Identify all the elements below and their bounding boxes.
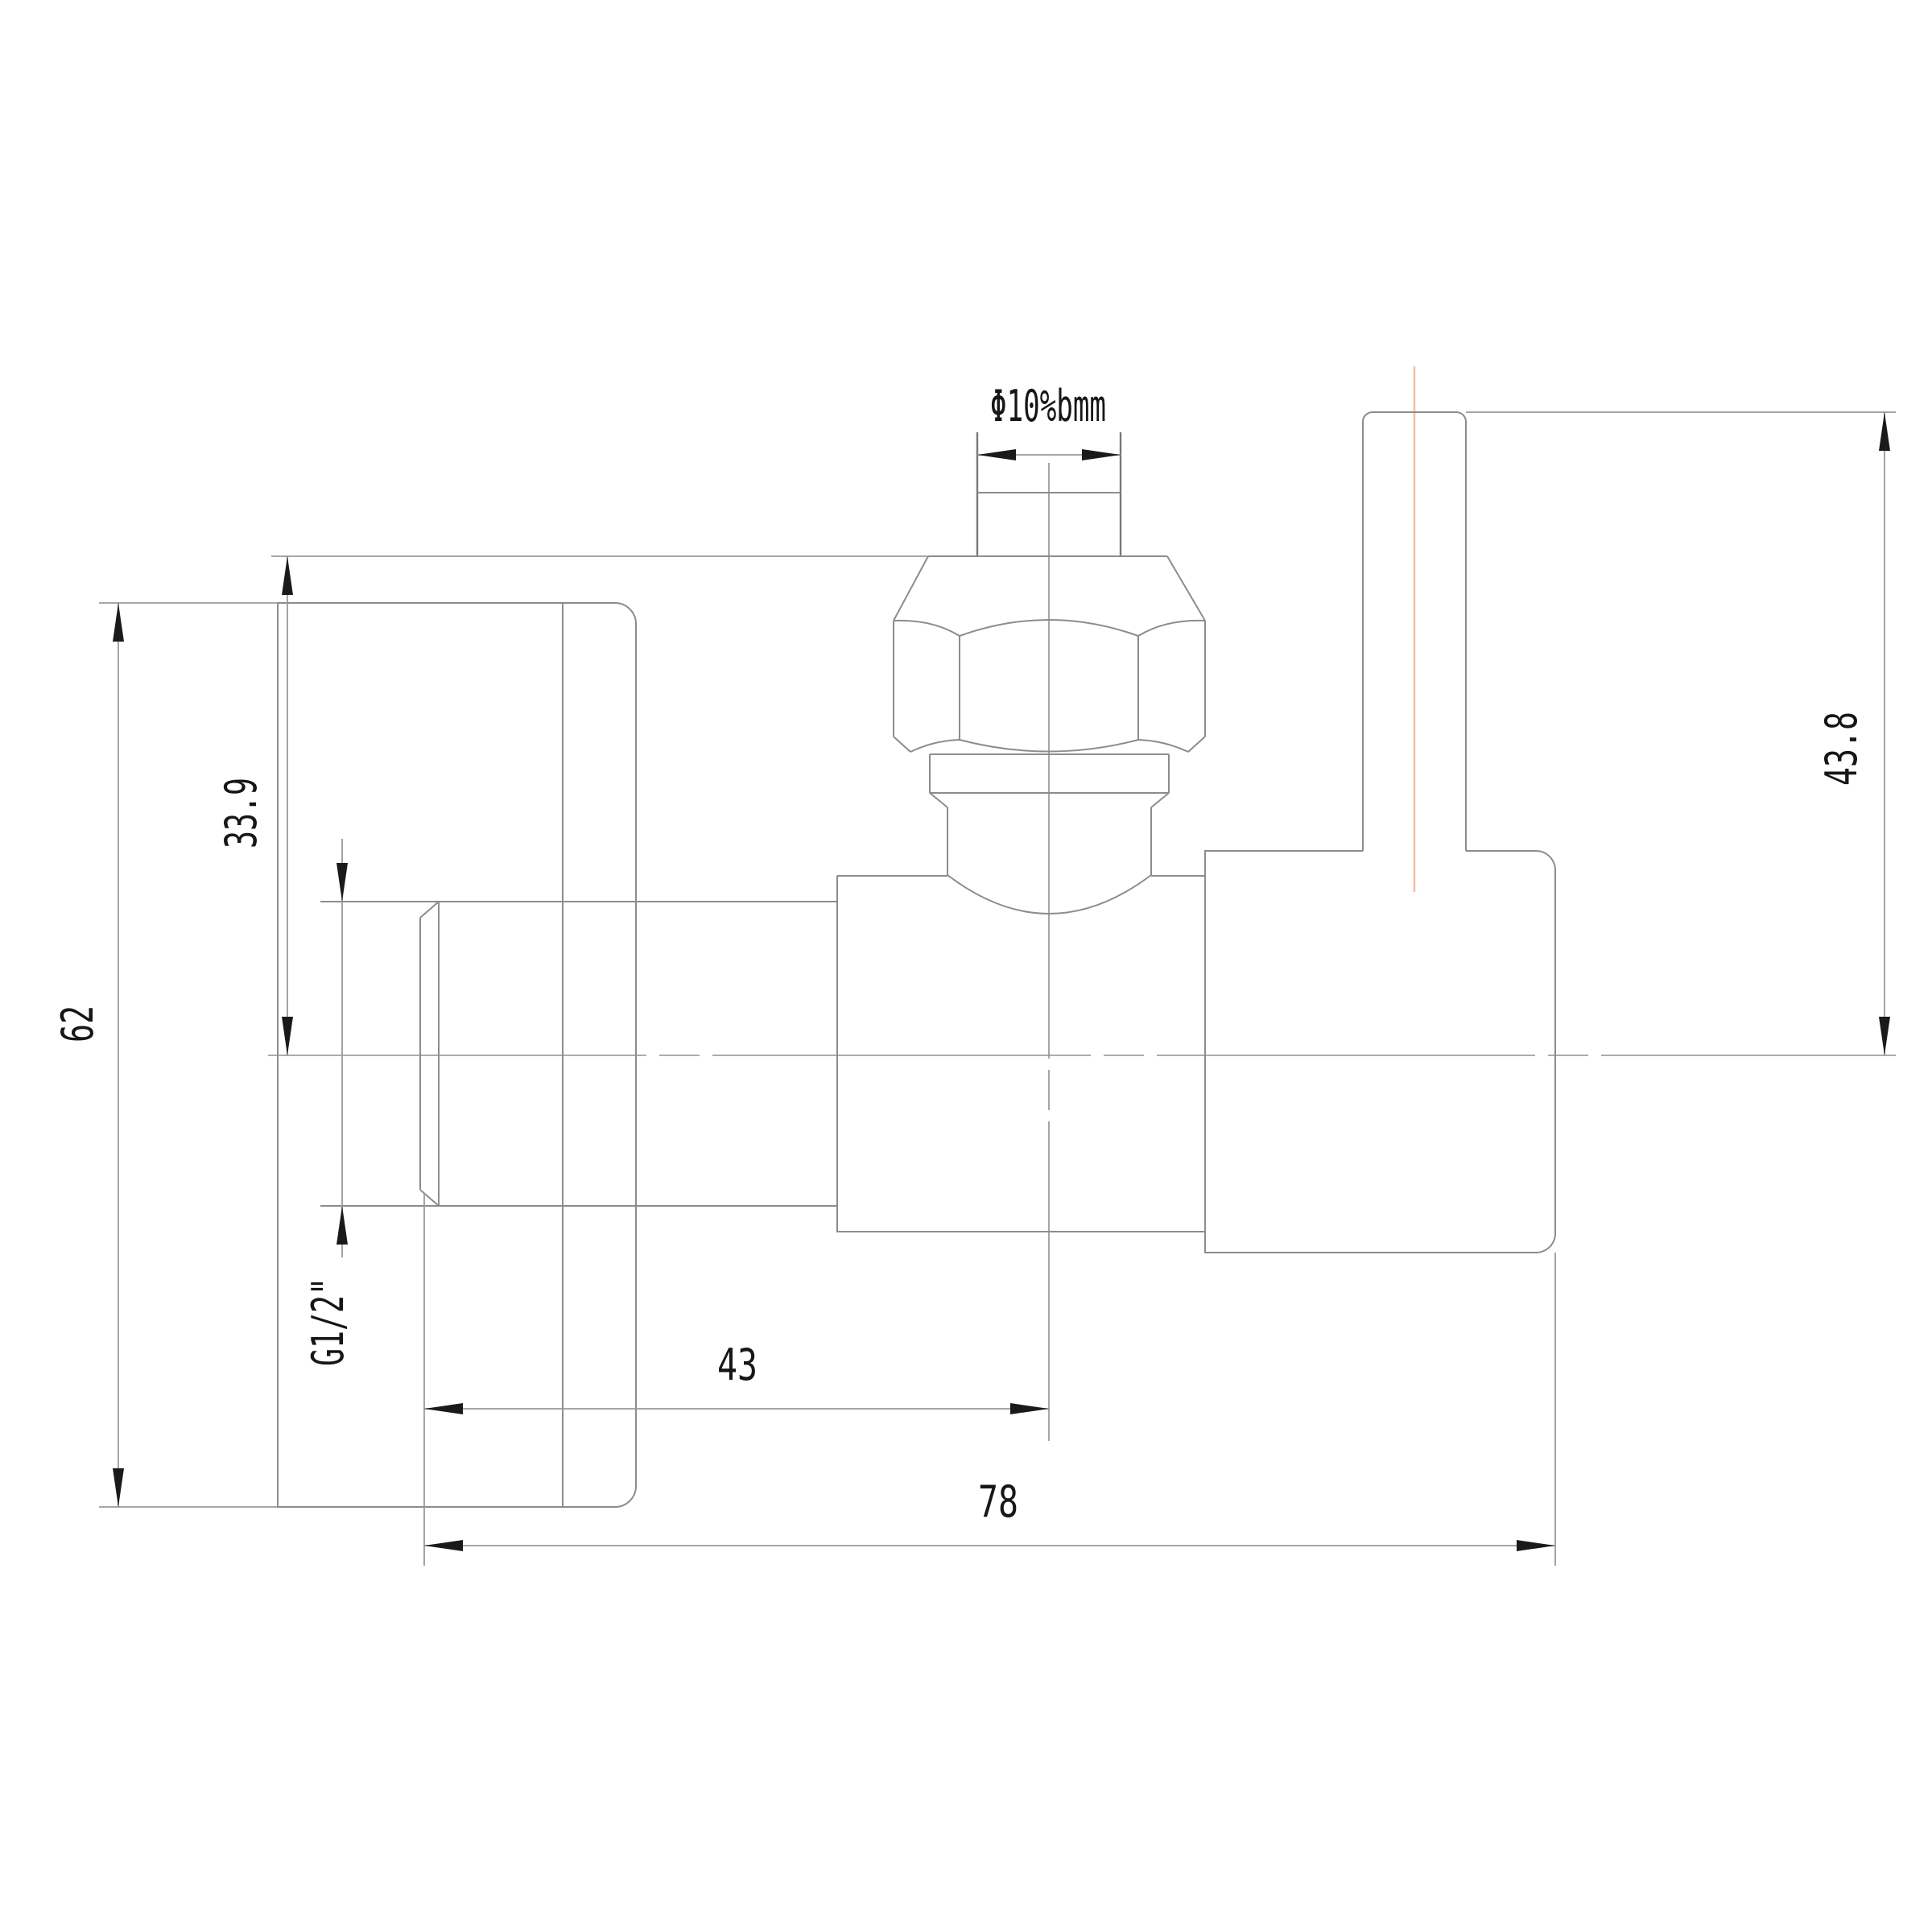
dim-43-arrow-left bbox=[424, 1403, 463, 1414]
dim-top-diameter-arrow-right bbox=[1082, 449, 1121, 460]
dim-43-label: 43 bbox=[717, 1340, 758, 1390]
dim-43-arrow-right bbox=[1010, 1403, 1049, 1414]
dim-78-label: 78 bbox=[978, 1476, 1018, 1527]
valve-drawing-canvas: Φ10%bmm 33.9 62 G1/2" 43 78 43.8 bbox=[0, 0, 1932, 1932]
dim-438-arrow-down bbox=[1879, 1017, 1890, 1055]
valve-body-outline bbox=[837, 876, 1205, 1232]
inlet-pipe-chamfer-bottom bbox=[420, 1190, 439, 1206]
dim-62-arrow-up bbox=[113, 603, 124, 642]
dim-78-arrow-right bbox=[1517, 1540, 1555, 1551]
dim-g12-arrow-up bbox=[336, 1206, 348, 1245]
inlet-pipe-chamfer-top bbox=[420, 902, 439, 918]
dim-438-label: 43.8 bbox=[1816, 712, 1867, 786]
dim-339-label: 33.9 bbox=[216, 778, 266, 848]
handle-block-outline bbox=[1205, 851, 1555, 1253]
dim-top-diameter-label: Φ10%bmm bbox=[990, 381, 1106, 431]
dim-62-label: 62 bbox=[52, 1005, 103, 1042]
dim-339-arrow-up bbox=[282, 556, 293, 595]
dim-78-arrow-left bbox=[424, 1540, 463, 1551]
drawing-sheet: Φ10%bmm 33.9 62 G1/2" 43 78 43.8 bbox=[0, 0, 1932, 1932]
dim-62-arrow-down bbox=[113, 1468, 124, 1507]
dim-top-diameter-arrow-left bbox=[977, 449, 1016, 460]
dim-339-arrow-down bbox=[282, 1017, 293, 1055]
dim-438-arrow-up bbox=[1879, 412, 1890, 451]
dim-g12-arrow-down bbox=[336, 863, 348, 902]
dim-g12-label: G1/2" bbox=[303, 1278, 353, 1366]
